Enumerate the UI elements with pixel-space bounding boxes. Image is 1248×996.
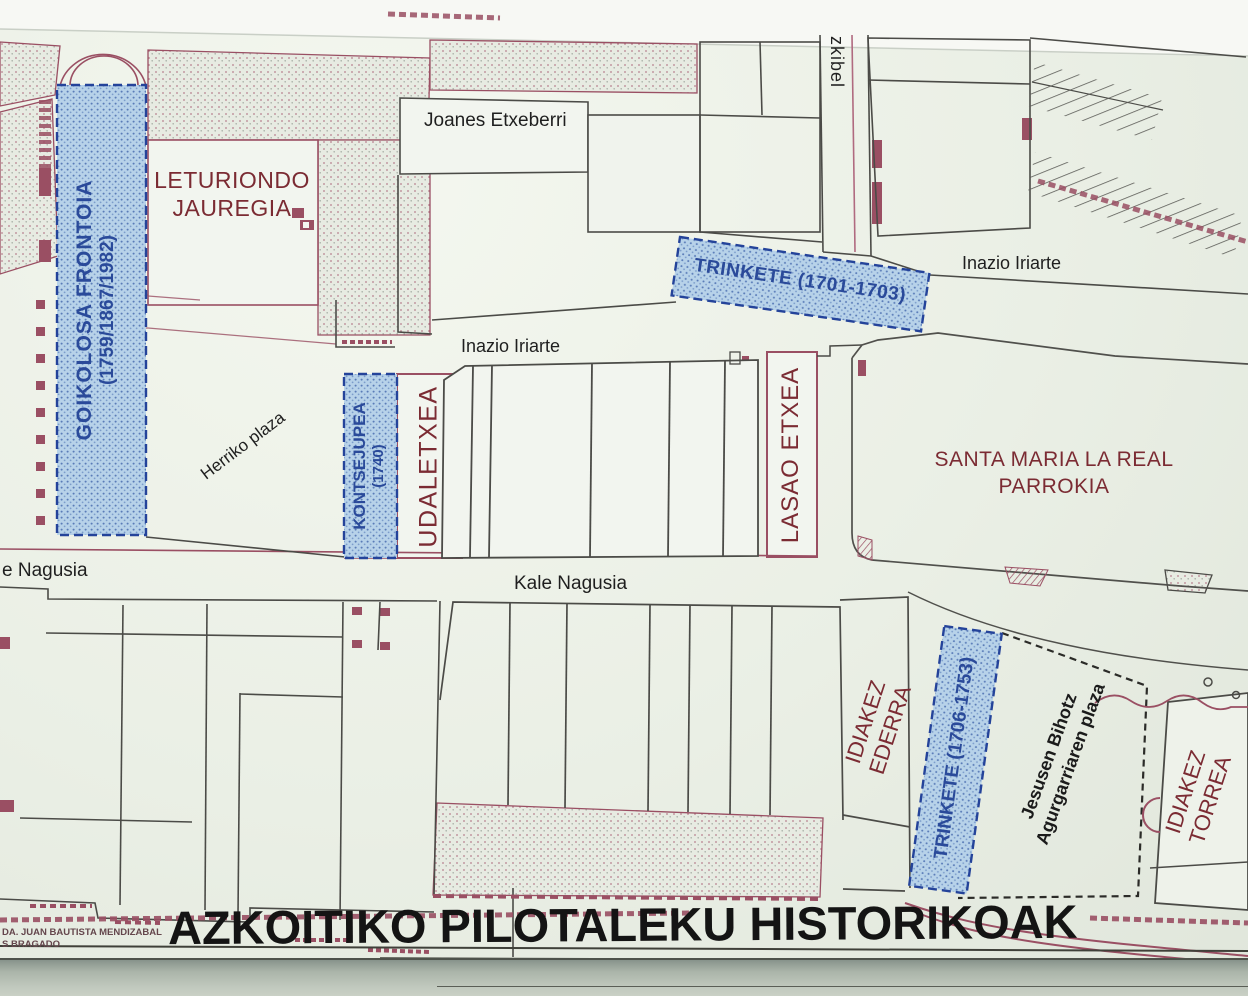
street-inazio-iriarte-right: Inazio Iriarte (962, 253, 1061, 274)
kontsejupea-name: KONTSEJUPEA (350, 371, 370, 561)
photo-bottom-edge (0, 958, 1248, 996)
building-udaletxea: UDALETXEA (415, 367, 444, 567)
street-joanes-etxeberri: Joanes Etxeberri (424, 110, 567, 132)
santa-maria-line2: PARROKIA (898, 473, 1210, 500)
hatch-yards (1028, 62, 1248, 258)
street-kale-nagusia: Kale Nagusia (514, 573, 627, 595)
goikolosa-years: (1759/1867/1982) (97, 150, 119, 470)
leturiondo-line2: JAUREGIA (143, 194, 321, 222)
building-leturiondo-jauregia: LETURIONDO JAUREGIA (143, 166, 321, 222)
credit-line2: S BRAGADO (2, 939, 162, 951)
table-edge-line (437, 986, 1248, 987)
court-kontsejupea: KONTSEJUPEA (1740) (350, 371, 390, 561)
street-inazio-iriarte-center: Inazio Iriarte (461, 336, 560, 357)
building-lasao-etxea: LASAO ETXEA (777, 345, 805, 565)
santa-maria-line1: SANTA MARIA LA REAL (898, 446, 1210, 473)
goikolosa-name: GOIKOLOSA FRONTOIA (73, 150, 97, 470)
leturiondo-line1: LETURIONDO (143, 166, 321, 194)
credit-line1: DA. JUAN BAUTISTA MENDIZABAL (2, 927, 162, 939)
map-title: AZKOITIKO PILOTALEKU HISTORIKOAK (168, 894, 1078, 955)
kontsejupea-years: (1740) (370, 371, 387, 561)
court-goikolosa-frontoia: GOIKOLOSA FRONTOIA (1759/1867/1982) (73, 150, 129, 470)
credit-text: DA. JUAN BAUTISTA MENDIZABAL S BRAGADO (2, 927, 162, 951)
church-parcel (852, 333, 1248, 670)
building-santa-maria-parrokia: SANTA MARIA LA REAL PARROKIA (898, 446, 1210, 500)
map-photo: Joanes Etxeberri LETURIONDO JAUREGIA GOI… (0, 0, 1248, 996)
street-aizkibel: zkibel (826, 36, 847, 88)
street-kale-nagusia-partial: e Nagusia (2, 560, 88, 582)
